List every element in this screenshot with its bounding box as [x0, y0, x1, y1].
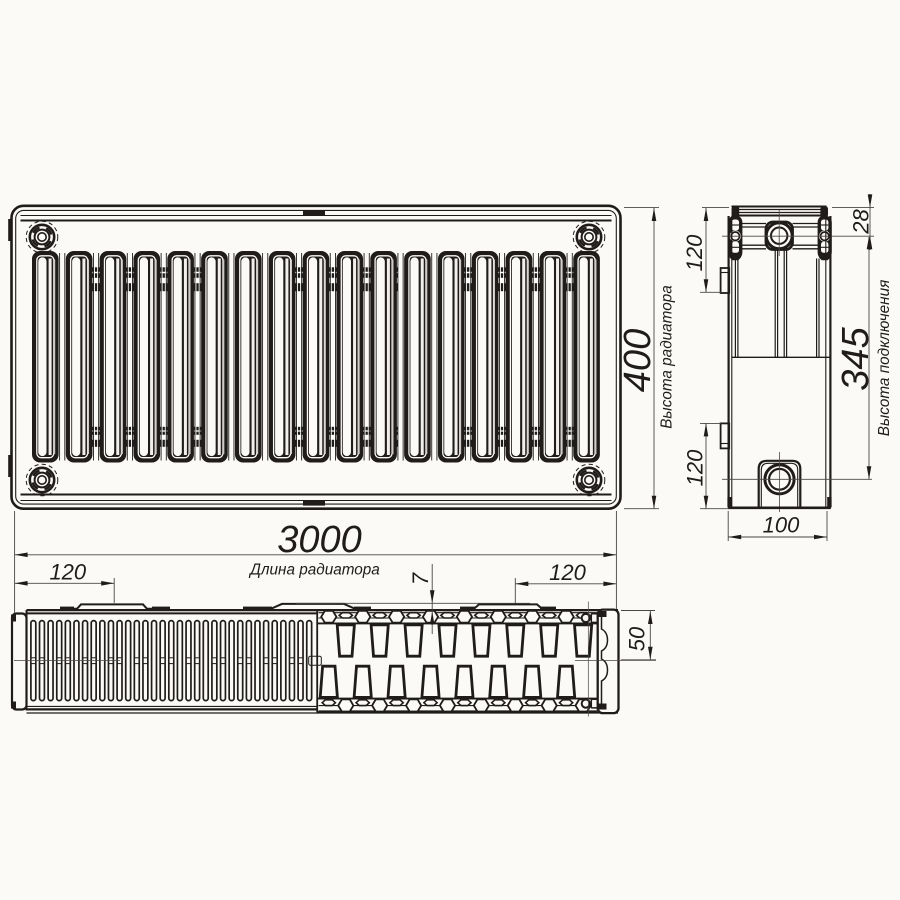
- svg-text:3000: 3000: [277, 519, 362, 561]
- svg-text:120: 120: [549, 560, 586, 585]
- svg-text:28: 28: [849, 209, 874, 235]
- svg-text:345: 345: [835, 326, 877, 390]
- svg-text:120: 120: [49, 560, 86, 585]
- svg-text:Высота радиатора: Высота радиатора: [659, 285, 676, 429]
- svg-text:7: 7: [408, 572, 433, 585]
- svg-text:50: 50: [625, 626, 650, 651]
- svg-text:Высота подключения: Высота подключения: [876, 280, 893, 437]
- svg-text:120: 120: [682, 234, 707, 271]
- svg-text:120: 120: [683, 449, 708, 486]
- svg-text:Длина радиатора: Длина радиатора: [248, 562, 380, 579]
- svg-text:400: 400: [617, 329, 659, 392]
- svg-text:100: 100: [763, 513, 800, 538]
